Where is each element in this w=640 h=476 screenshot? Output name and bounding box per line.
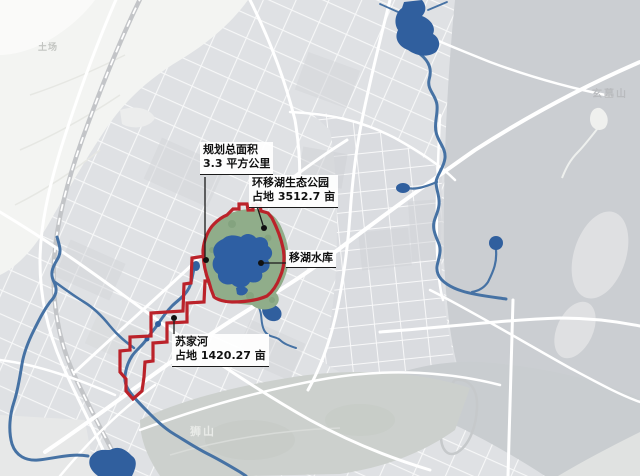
annotation-reservoir: 移湖水库 (286, 250, 336, 268)
annotation-eco-park-line2: 占地 3512.7 亩 (252, 190, 335, 204)
place-label-shishan: 狮山 (190, 423, 216, 439)
marker-dot-sujia-river (171, 315, 177, 321)
annotation-sujia-river-line2: 占地 1420.27 亩 (175, 349, 266, 363)
planning-map: 规划总面积 3.3 平方公里 环移湖生态公园 占地 3512.7 亩 移湖水库 … (0, 0, 640, 476)
annotation-reservoir-label: 移湖水库 (289, 251, 333, 265)
marker-dot-planning-area (203, 257, 209, 263)
map-canvas (0, 0, 640, 476)
annotation-eco-park-line1: 环移湖生态公园 (252, 176, 335, 190)
annotation-planning-area-line1: 规划总面积 (203, 143, 270, 157)
annotation-eco-park: 环移湖生态公园 占地 3512.7 亩 (249, 175, 338, 208)
rural-patch-southwest (0, 415, 95, 476)
annotation-sujia-river: 苏家河 占地 1420.27 亩 (172, 334, 269, 367)
marker-dot-reservoir (258, 260, 264, 266)
place-label-xuanmushan: 玄墓山 (592, 85, 628, 100)
place-label-tuchang: 土场 (38, 40, 58, 53)
marker-dot-eco-park (261, 225, 267, 231)
annotation-planning-area: 规划总面积 3.3 平方公里 (200, 142, 273, 175)
annotation-planning-area-line2: 3.3 平方公里 (203, 157, 270, 171)
annotation-sujia-river-line1: 苏家河 (175, 335, 266, 349)
